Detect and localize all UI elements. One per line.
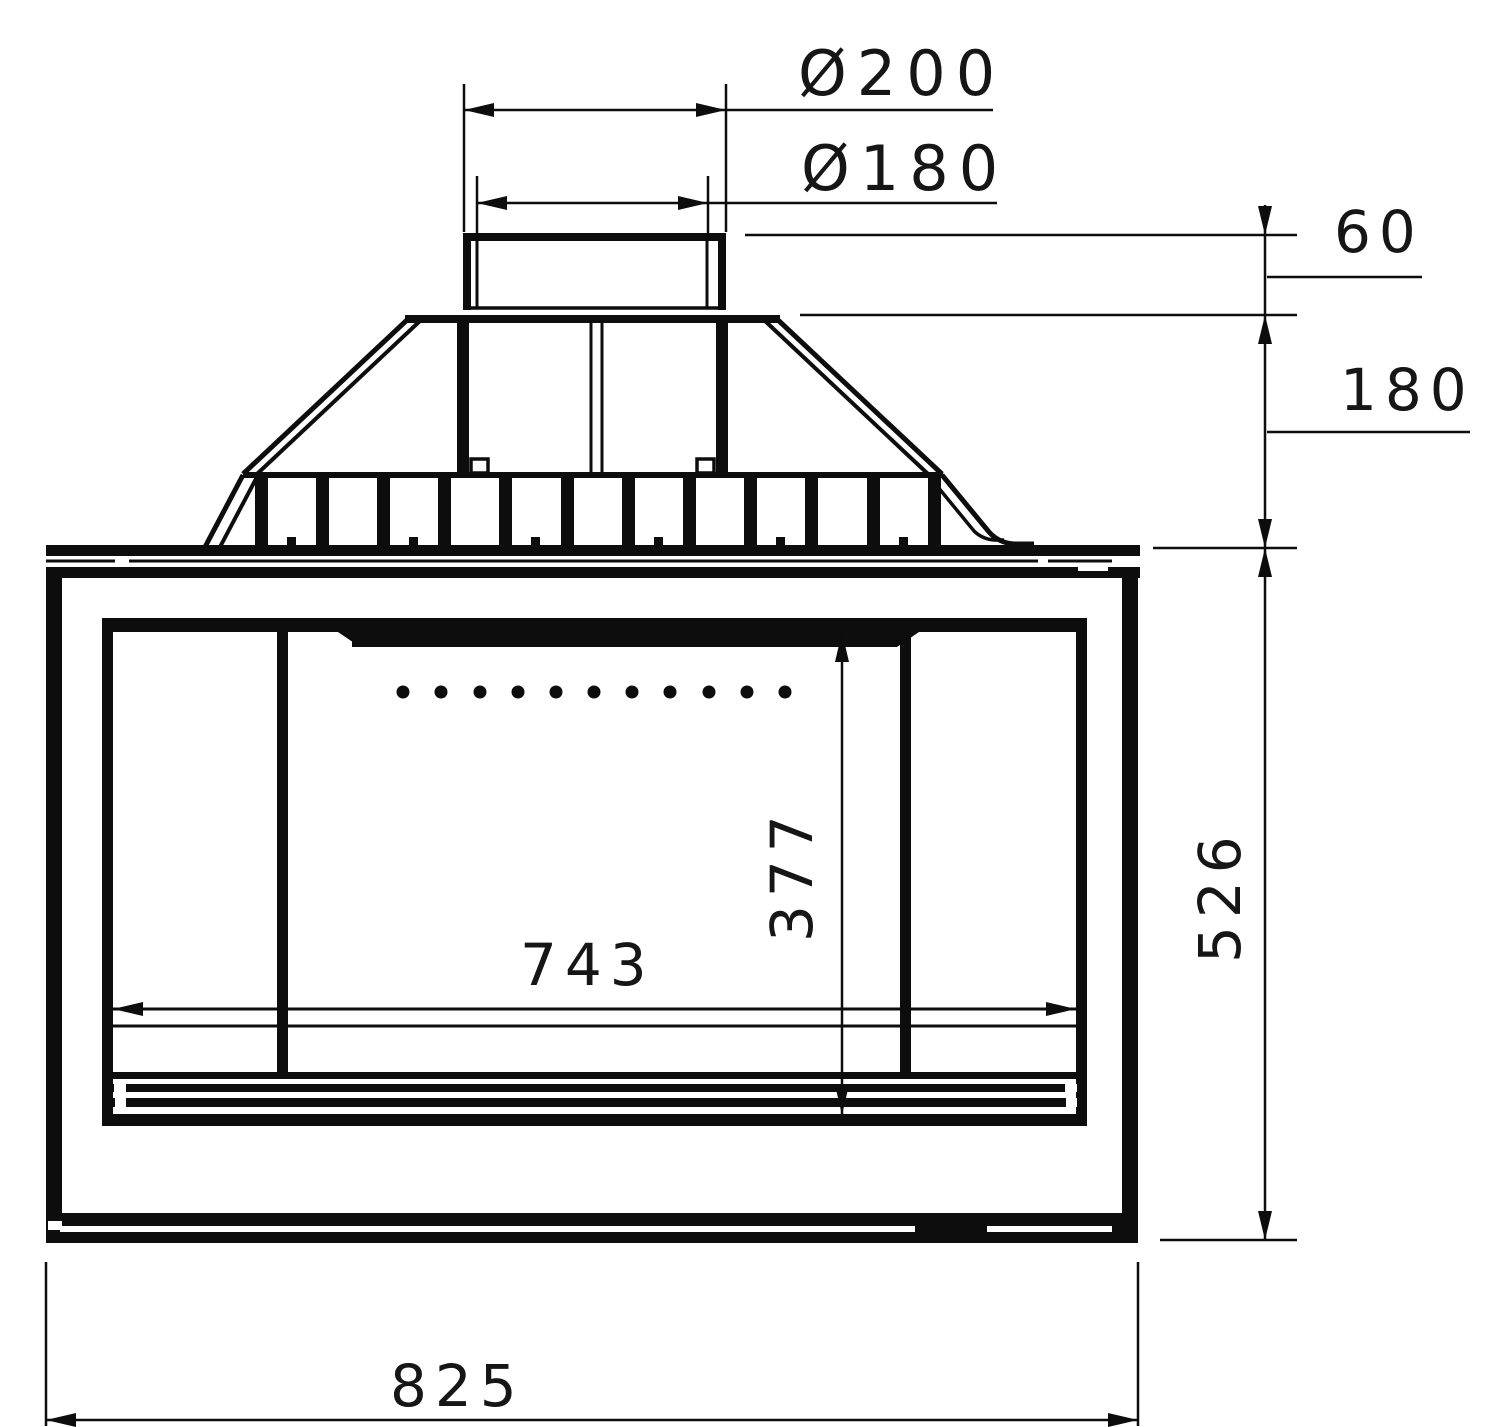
door-frame-bottom: [102, 1114, 1087, 1126]
smoke-hood: [243, 315, 942, 474]
dim-label-door-opening-height: 377: [758, 807, 826, 942]
firebox-body: [46, 578, 1138, 1243]
dim-label-door-opening-width: 743: [520, 931, 655, 999]
flue-collar: [463, 233, 726, 310]
dim-label-overall-width: 825: [390, 1352, 525, 1420]
glass-mullion-left: [277, 632, 288, 1072]
dim-door-opening-width: 743: [113, 931, 1076, 1016]
firebox-wall-left: [46, 578, 62, 1243]
dim-overall-width: 825: [46, 1262, 1138, 1427]
dim-flue-inner-diameter: Ø180: [477, 132, 1008, 240]
dim-label-flue-outer: Ø200: [798, 37, 1005, 110]
dim-height-chain: 60 180 526: [745, 198, 1475, 1240]
dim-label-body-height: 526: [1186, 828, 1254, 963]
page: Ø200 Ø180: [0, 0, 1500, 1427]
air-inlet-holes: [397, 686, 792, 699]
door-frame-top: [102, 618, 1087, 632]
door-jamb-right: [1076, 618, 1087, 1126]
convection-grille: [205, 472, 1034, 547]
dim-label-flue-inner: Ø180: [801, 132, 1008, 205]
flue-pipe-wall-left: [457, 323, 469, 473]
flue-pipe-wall-right: [716, 323, 728, 473]
smoke-deflector: [352, 632, 897, 647]
collar-top: [463, 233, 726, 241]
technical-drawing: Ø200 Ø180: [0, 0, 1500, 1427]
firebox-top-plate: [46, 545, 1140, 578]
dim-label-collar-height: 60: [1334, 198, 1424, 266]
firebox-wall-right: [1122, 578, 1138, 1243]
dim-door-opening-height: 377: [758, 632, 849, 1115]
dim-label-hood-height: 180: [1340, 356, 1475, 424]
hood-top: [405, 315, 780, 323]
glass-mullion-right: [900, 632, 911, 1072]
door-jamb-left: [102, 618, 113, 1126]
